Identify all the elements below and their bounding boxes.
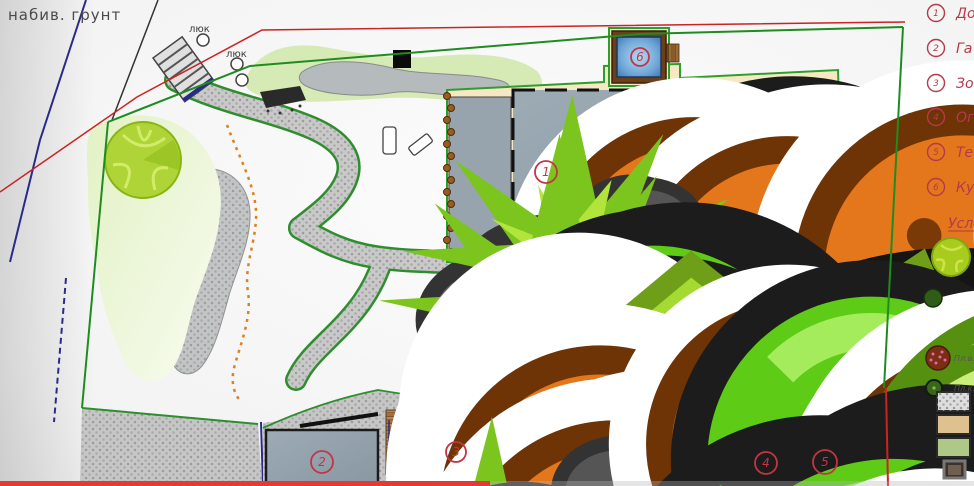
legend-num: 4 [933, 113, 939, 123]
video-progress-bar[interactable] [0, 481, 974, 486]
legend-label: Зо [956, 76, 974, 92]
landscape-plan-frame: набив. грунт люк люк 1 2 3 4 5 6 1 До 2 … [0, 0, 974, 486]
legend-num: 2 [933, 44, 939, 54]
legend-label: До [955, 6, 974, 22]
legend-symbol-dark-bush [924, 289, 942, 307]
legend-label: Ку [956, 180, 974, 196]
legend-symbols-heading: Усло [948, 216, 974, 232]
marker-garage: 2 [318, 455, 326, 469]
site-plan-drawing: набив. грунт люк люк 1 2 3 4 5 6 1 До 2 … [0, 0, 974, 486]
legend-symbol-large-tree [932, 238, 970, 276]
legend-num: 1 [933, 9, 939, 19]
legend-label: Га [956, 41, 972, 57]
manhole-label: люк [189, 24, 210, 35]
marker-pool: 6 [636, 50, 644, 64]
tall-fruit-label: Пл.в. [954, 354, 974, 363]
legend-label: Ог [956, 110, 974, 126]
marker-greenhouse: 5 [821, 455, 829, 469]
marker-house: 1 [542, 165, 550, 179]
video-progress-fill[interactable] [0, 481, 490, 486]
large-palmate-tree [105, 122, 181, 198]
marker-garden-beds: 4 [762, 456, 770, 470]
marker-patio-zone: 3 [452, 445, 460, 459]
legend-num: 6 [933, 183, 939, 193]
legend-num: 5 [933, 148, 939, 158]
ground-note: набив. грунт [8, 6, 121, 24]
manhole-label: люк [226, 49, 247, 60]
legend-label: Те [956, 145, 973, 161]
legend-num: 3 [933, 79, 939, 89]
lounger [383, 127, 396, 154]
